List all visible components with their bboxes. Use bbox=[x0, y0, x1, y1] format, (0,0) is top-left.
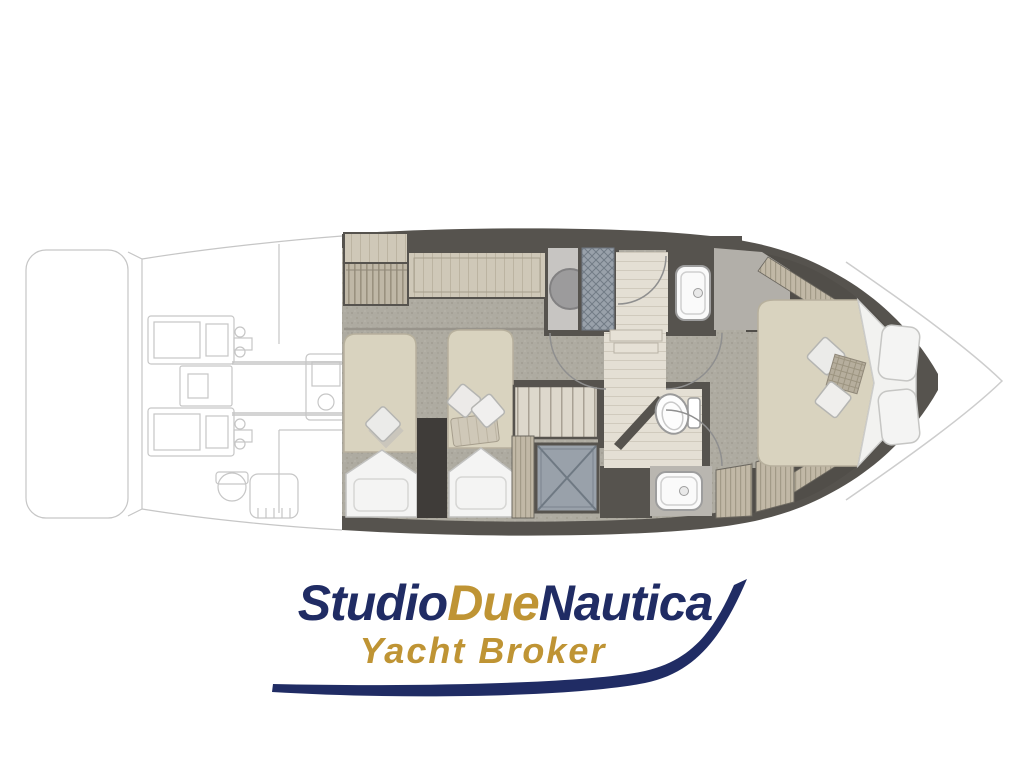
midship-shower bbox=[536, 444, 598, 512]
hull-sheer-top bbox=[142, 236, 342, 259]
vestibule-floor bbox=[616, 252, 668, 332]
starboard-sink-group bbox=[668, 246, 714, 332]
entry-step-1 bbox=[610, 330, 662, 341]
tank-outline bbox=[250, 474, 298, 518]
transom-line bbox=[128, 252, 142, 516]
faucet bbox=[694, 289, 703, 298]
swim-platform-outline bbox=[26, 250, 128, 518]
port-engine-outline bbox=[148, 316, 252, 364]
brand-name: StudioDueNautica bbox=[245, 578, 765, 628]
forward-bathroom-group bbox=[548, 248, 614, 330]
prop-shaft-line bbox=[232, 363, 344, 414]
nightstand bbox=[417, 418, 447, 518]
slat-cabinet-1 bbox=[716, 464, 752, 518]
sideboard bbox=[408, 252, 546, 298]
bow-cushion-2 bbox=[877, 388, 920, 446]
brand-part-due: Due bbox=[447, 575, 538, 631]
stern-linework bbox=[26, 236, 346, 530]
hull-sheer-bottom bbox=[142, 509, 342, 530]
wardrobe bbox=[344, 233, 408, 305]
brand-logo: StudioDueNautica Yacht Broker bbox=[245, 570, 765, 705]
bow-cushion-1 bbox=[877, 324, 920, 382]
cockpit-lines bbox=[279, 244, 342, 513]
staircase bbox=[514, 386, 598, 438]
brand-tagline: Yacht Broker bbox=[223, 633, 743, 669]
faucet bbox=[680, 487, 689, 496]
master-cabin-group bbox=[758, 300, 921, 466]
gearbox-outline bbox=[180, 366, 232, 406]
wall-divider bbox=[578, 248, 582, 330]
brand-part-nautica: Nautica bbox=[539, 575, 713, 631]
pump-outline bbox=[216, 472, 248, 501]
brand-part-studio: Studio bbox=[298, 575, 448, 631]
vestibule-group bbox=[616, 252, 668, 332]
entry-step-2 bbox=[614, 343, 658, 353]
shower-top bbox=[582, 248, 614, 330]
yacht-floorplan-page: StudioDueNautica Yacht Broker bbox=[0, 0, 1024, 768]
wood-slat-column bbox=[512, 436, 534, 518]
